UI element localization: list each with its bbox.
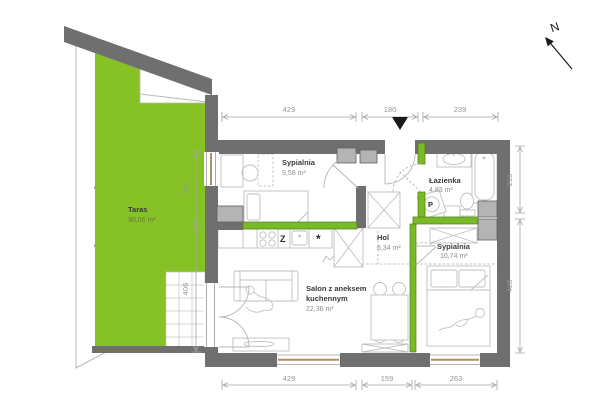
floor-plan-canvas: Taras 30,06 m² Sypialnia 9,58 m² Łazienk… [0,0,600,413]
label-living-1: Salon z aneksem [306,284,367,293]
desk-chair [242,165,258,181]
dim-right-1 [515,146,525,213]
wall-bottom-1 [205,353,277,367]
tv-cabinet [233,338,289,351]
wall-left-mid [205,186,218,283]
window-bedroom2 [430,353,480,367]
bathroom-door [393,164,421,192]
wardrobe-dashed [258,154,273,186]
entrance-arrow-icon [392,117,408,130]
wall-bottom-2 [340,353,430,367]
entrance-door [385,139,415,184]
kitchen-counter [218,229,332,248]
window-living [277,353,340,367]
label-taras: Taras [128,205,147,214]
area-living: 22,36 m² [306,306,334,313]
accent-wall-bath-top [418,143,425,164]
sink-faucet [298,235,301,238]
chair [374,283,387,296]
area-bedroom2: 10,74 m² [440,253,468,260]
dim-bottom-3-value: 263 [450,374,463,383]
dining-table [371,295,408,340]
terrace-parapet [92,346,206,353]
dim-top-3-value: 239 [454,105,467,114]
accent-wall-bath-bottom [418,192,425,219]
dim-top-2-value: 180 [384,105,397,114]
wall-bottom-3 [480,353,510,367]
bedroom2-door [416,247,436,265]
accent-wall-kitchen [243,222,357,229]
area-taras: 30,06 m² [128,217,156,224]
dim-right-1-value: 216 [505,174,514,187]
label-living-2: kuchennym [306,294,348,303]
dim-left-1-value: 240 [181,182,190,195]
floor-plan: Taras 30,06 m² Sypialnia 9,58 m² Łazienk… [0,0,600,413]
dim-right-2-value: 428 [505,280,514,293]
wall-top-right [415,140,510,154]
terrace [95,53,207,351]
label-bedroom1: Sypialnia [282,158,316,167]
dim-right-2 [515,219,525,353]
label-bedroom2: Sypialnia [437,242,471,251]
toilet [460,193,475,216]
area-bedroom1: 9,58 m² [282,170,306,177]
washer-symbol: P [428,200,433,209]
label-hall: Hol [377,233,389,242]
sink-icon [292,231,307,245]
chair [393,283,406,296]
area-bathroom: 4,83 m² [429,187,453,194]
wall-bedroom1-hall [356,186,366,228]
compass: N [545,19,572,69]
dim-bottom-1-value: 429 [283,374,296,383]
pillow [431,270,457,287]
window-bedroom1 [204,152,219,186]
desk [221,155,243,187]
accent-wall-bedroom2 [410,224,416,352]
pillow [247,194,260,220]
dim-left-2-value: 406 [181,283,190,296]
compass-north-label: N [548,19,561,35]
accent-wall-bath-south [413,217,478,224]
area-hall: 6,34 m² [377,245,401,252]
pillow [459,270,485,287]
wall-top-left [205,140,385,154]
dim-top-1-value: 429 [283,105,296,114]
hall-wardrobes [334,192,400,267]
dim-bottom-2-value: 159 [381,374,394,383]
sideboard [362,344,408,352]
dishwasher-symbol: Z [280,234,286,244]
dining-set [371,283,408,343]
label-bathroom: Łazienka [429,176,462,185]
fridge-symbol: * [316,232,321,246]
